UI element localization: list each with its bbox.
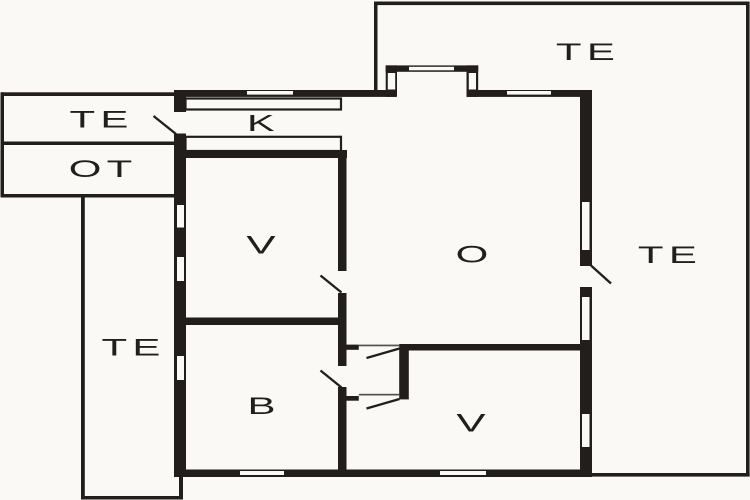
- svg-text:V: V: [246, 231, 275, 259]
- svg-text:OT: OT: [69, 156, 138, 183]
- svg-text:TE: TE: [102, 334, 166, 361]
- svg-text:V: V: [456, 409, 485, 437]
- svg-text:TE: TE: [638, 242, 702, 269]
- svg-text:K: K: [247, 111, 275, 136]
- svg-text:B: B: [247, 393, 275, 420]
- svg-text:O: O: [456, 241, 489, 268]
- svg-text:TE: TE: [70, 106, 134, 133]
- svg-text:TE: TE: [556, 39, 620, 66]
